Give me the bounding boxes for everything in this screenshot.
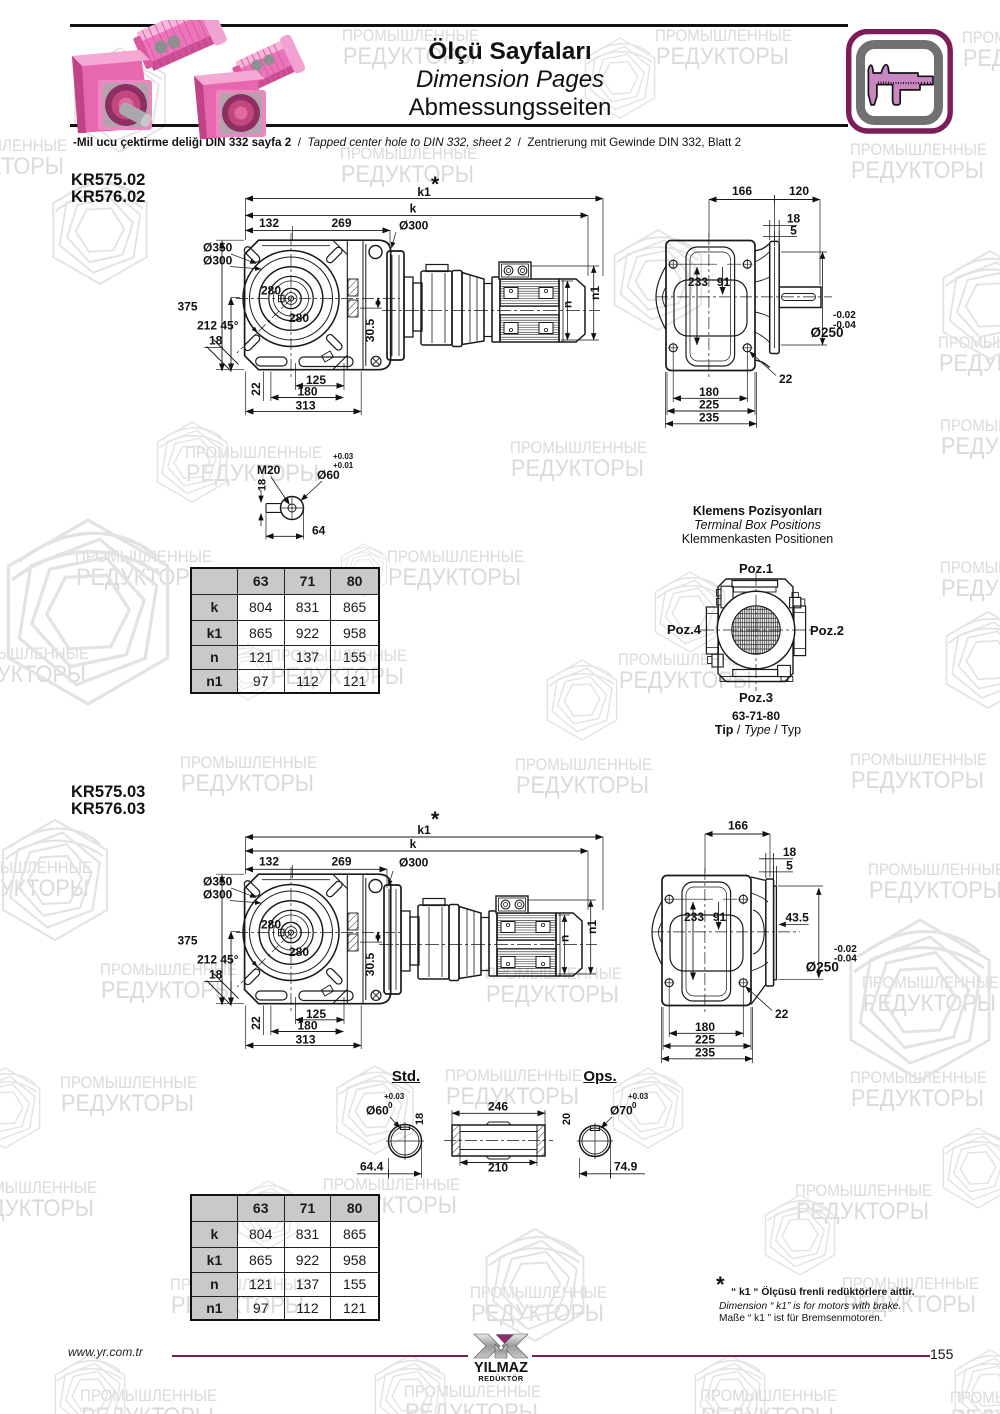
svg-text:Ø70: Ø70 <box>610 1104 633 1118</box>
svg-text:5: 5 <box>790 224 797 238</box>
svg-text:30.5: 30.5 <box>363 318 377 342</box>
svg-text:64: 64 <box>312 524 326 538</box>
svg-text:132: 132 <box>259 855 279 869</box>
svg-text:n1: n1 <box>585 920 599 934</box>
svg-text:0: 0 <box>632 1101 637 1110</box>
svg-text:269: 269 <box>331 216 351 230</box>
svg-text:Ø350: Ø350 <box>203 241 233 255</box>
svg-text:n: n <box>561 301 575 308</box>
svg-text:k1: k1 <box>417 185 431 199</box>
svg-text:132: 132 <box>259 216 279 230</box>
svg-text:22: 22 <box>775 1007 789 1021</box>
svg-text:REDÜKTÖR: REDÜKTÖR <box>478 1374 524 1383</box>
svg-text:Ø250: Ø250 <box>811 325 844 340</box>
svg-text:212 45°: 212 45° <box>197 319 239 333</box>
svg-text:*: * <box>431 173 440 196</box>
svg-text:30.5: 30.5 <box>363 952 377 976</box>
svg-text:74.9: 74.9 <box>614 1160 638 1174</box>
svg-text:225: 225 <box>695 1033 715 1047</box>
svg-text:18: 18 <box>783 845 797 859</box>
svg-text:18: 18 <box>209 334 223 348</box>
svg-text:Ø300: Ø300 <box>203 888 233 902</box>
svg-text:+0.03: +0.03 <box>333 452 354 461</box>
svg-text:18: 18 <box>414 1113 426 1125</box>
svg-text:n1: n1 <box>588 286 602 300</box>
svg-text:+0.03: +0.03 <box>628 1092 649 1101</box>
svg-text:166: 166 <box>732 184 752 198</box>
svg-text:22: 22 <box>249 382 263 396</box>
svg-text:235: 235 <box>695 1046 715 1060</box>
svg-text:22: 22 <box>249 1016 263 1030</box>
svg-text:269: 269 <box>331 855 351 869</box>
svg-text:k: k <box>410 202 417 216</box>
svg-text:180: 180 <box>297 1019 317 1033</box>
svg-text:210: 210 <box>488 1161 508 1175</box>
svg-text:180: 180 <box>297 385 317 399</box>
svg-text:0: 0 <box>388 1101 393 1110</box>
svg-text:Ø300: Ø300 <box>203 254 233 268</box>
svg-text:Ø60: Ø60 <box>317 468 340 482</box>
svg-text:22: 22 <box>779 372 793 386</box>
svg-text:280: 280 <box>261 918 281 932</box>
svg-text:43.5: 43.5 <box>786 911 810 925</box>
svg-text:313: 313 <box>295 399 315 413</box>
svg-text:n: n <box>558 935 572 942</box>
svg-text:*: * <box>431 808 440 831</box>
svg-text:212 45°: 212 45° <box>197 953 239 967</box>
svg-text:18: 18 <box>209 968 223 982</box>
svg-text:280: 280 <box>289 311 309 325</box>
svg-text:120: 120 <box>789 184 809 198</box>
svg-text:313: 313 <box>295 1033 315 1047</box>
svg-text:18: 18 <box>257 479 269 491</box>
svg-text:Ø250: Ø250 <box>806 960 839 975</box>
svg-text:225: 225 <box>699 398 719 412</box>
svg-text:235: 235 <box>699 411 719 425</box>
svg-text:64.4: 64.4 <box>360 1160 384 1174</box>
svg-text:+0.03: +0.03 <box>384 1092 405 1101</box>
svg-text:k1: k1 <box>417 823 431 837</box>
svg-text:+0.01: +0.01 <box>333 461 354 470</box>
svg-text:280: 280 <box>289 945 309 959</box>
svg-text:Ø350: Ø350 <box>203 875 233 889</box>
svg-text:Ø300: Ø300 <box>399 856 429 870</box>
svg-text:375: 375 <box>177 934 197 948</box>
svg-text:k: k <box>410 837 417 851</box>
svg-text:Ø60: Ø60 <box>366 1104 389 1118</box>
svg-text:280: 280 <box>261 284 281 298</box>
svg-text:20: 20 <box>561 1113 573 1125</box>
svg-text:M20: M20 <box>257 463 281 477</box>
svg-text:246: 246 <box>488 1100 508 1114</box>
svg-text:375: 375 <box>177 300 197 314</box>
svg-text:166: 166 <box>728 819 748 833</box>
svg-text:5: 5 <box>786 859 793 873</box>
svg-text:Ø300: Ø300 <box>399 219 429 233</box>
